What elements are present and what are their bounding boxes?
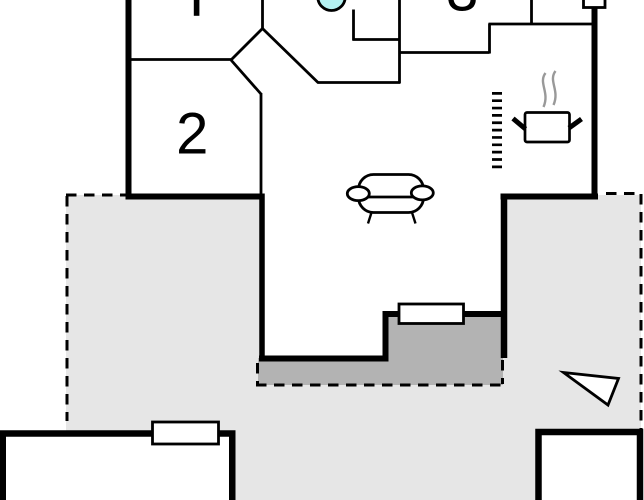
svg-text:3: 3 xyxy=(446,0,478,24)
svg-text:2: 2 xyxy=(176,102,208,167)
